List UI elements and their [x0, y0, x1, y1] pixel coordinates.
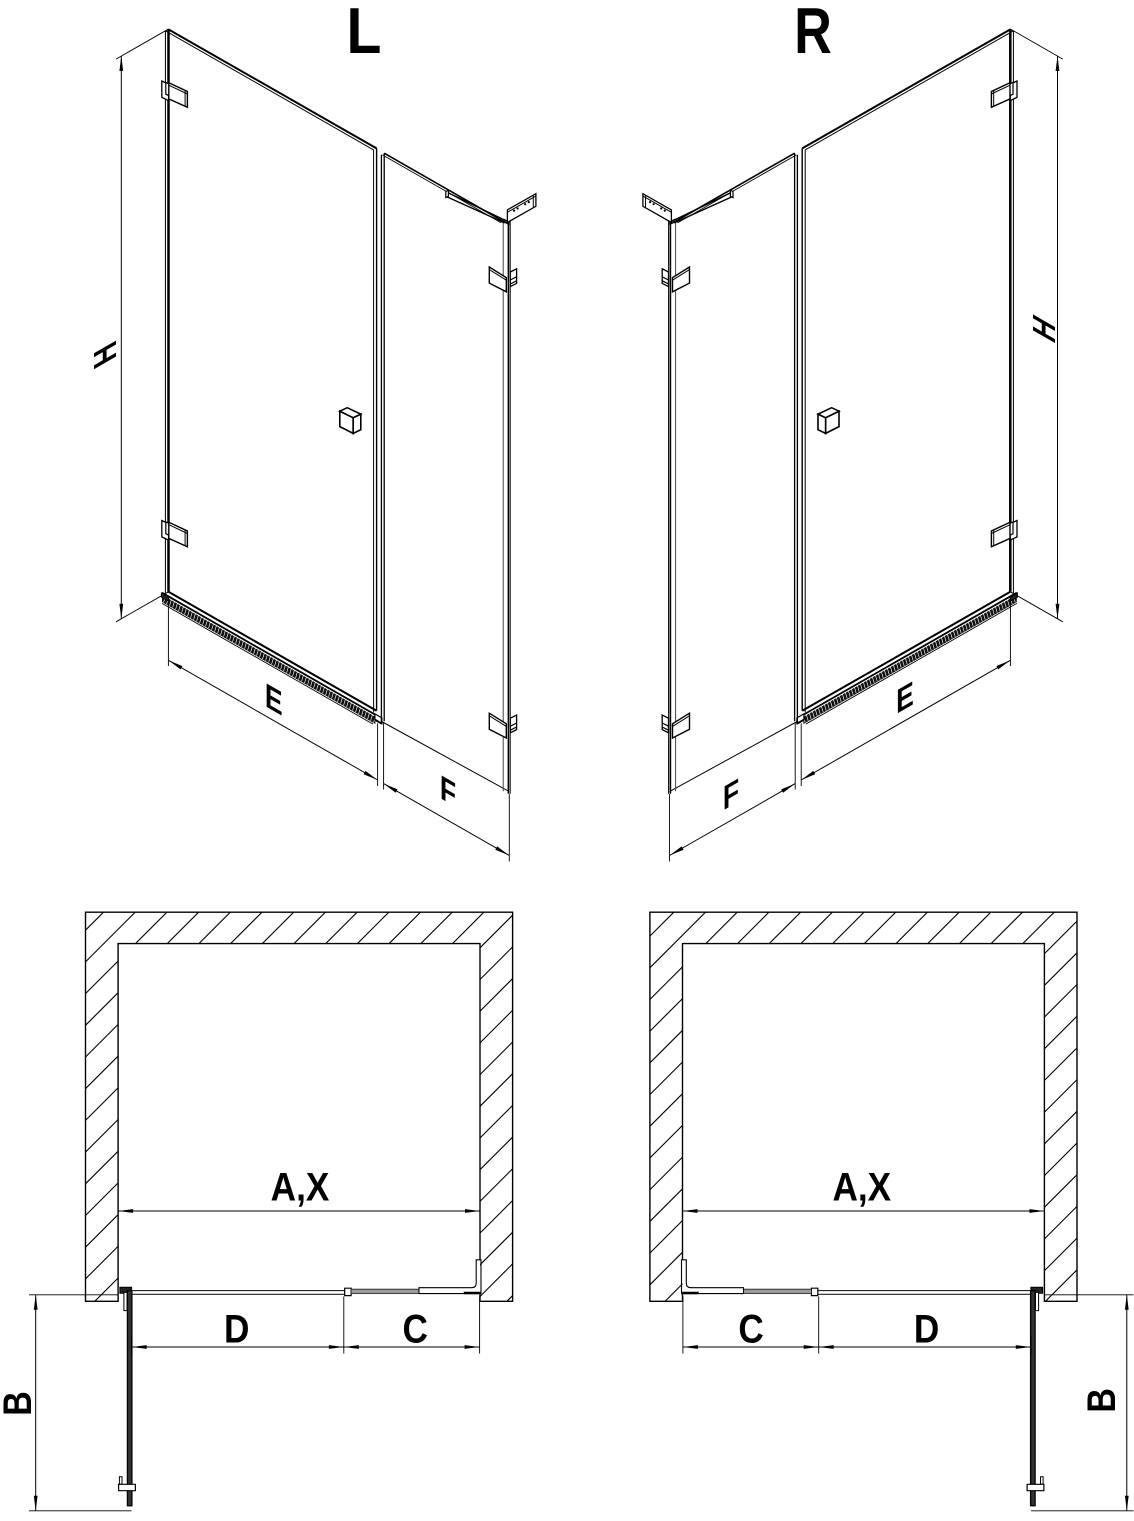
svg-text:A,X: A,X [271, 1164, 330, 1209]
svg-text:D: D [224, 1306, 249, 1351]
svg-text:L: L [347, 0, 382, 67]
svg-text:A,X: A,X [832, 1164, 891, 1209]
svg-text:C: C [738, 1306, 763, 1351]
svg-text:R: R [794, 0, 832, 68]
svg-text:B: B [0, 1391, 40, 1416]
svg-text:B: B [1078, 1388, 1123, 1413]
svg-text:D: D [914, 1306, 939, 1351]
svg-text:C: C [402, 1306, 427, 1351]
